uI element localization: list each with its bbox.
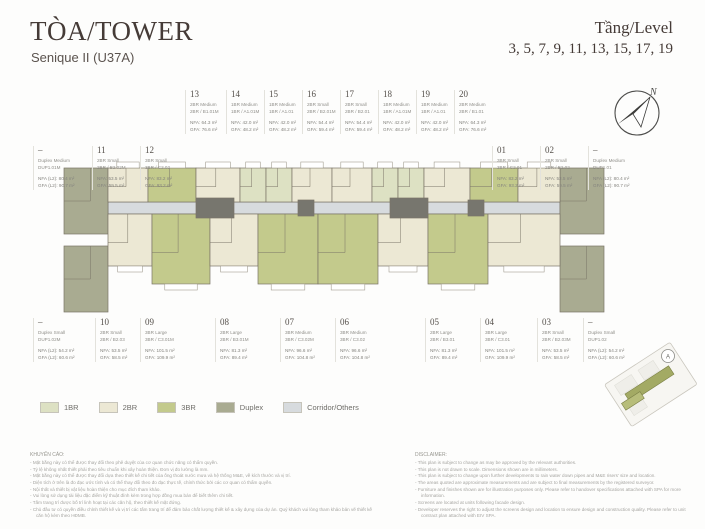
unit-nfa: NFA: 96.6 m²	[340, 348, 380, 355]
advisory-line: Vui lòng sử dụng tài liệu đặc điểm kỹ th…	[30, 493, 378, 500]
legend: 1BR 2BR 3BR Duplex Corridor/Others	[40, 402, 359, 413]
unit-gfa: GFA: 89.4 m²	[220, 355, 260, 362]
unit-nfa: NFA: 64.3 m²	[190, 120, 230, 127]
legend-label: Duplex	[240, 403, 263, 412]
unit-gfa: GFA (L2): 60.6 m²	[588, 355, 638, 362]
unit-gfa: GFA: 89.4 m²	[430, 355, 470, 362]
unit-label-09: 09 3BR Large 3BR / C3.01M NFA: 101.5 m² …	[140, 318, 185, 362]
unit-type: 3BR Large	[145, 330, 185, 337]
unit-label-12: 12 3BR Small 3BR / C2.02 NFA: 83.2 m² GF…	[140, 146, 185, 190]
disclaimer-line: This plan is not drawn to scale. Dimensi…	[415, 467, 687, 474]
unit-label-20: 20 2BR Medium 2BR / B1.01 NFA: 64.3 m² G…	[454, 90, 499, 134]
disclaimer-line: Screens are located at units following f…	[415, 500, 687, 507]
unit-number: 02	[545, 146, 585, 156]
unit-type: 2BR Large	[430, 330, 470, 337]
unit-gfa: GFA: 104.8 m²	[340, 355, 380, 362]
unit-type: 2BR Small	[542, 330, 582, 337]
legend-swatch-3br	[157, 402, 176, 413]
unit-number: 06	[340, 318, 380, 328]
unit-nfa: NFA: 53.5 m²	[545, 176, 585, 183]
unit-number: –	[38, 318, 88, 328]
legend-label: Corridor/Others	[307, 403, 359, 412]
advisory-line: Mặt bằng này có thể được thay đổi dựa th…	[30, 473, 378, 480]
advisory-line: Diện tích ở trên là đo đạc ước tính và c…	[30, 480, 378, 487]
unit-type: Duplex Small	[38, 330, 88, 337]
unit-type: 3BR Medium	[285, 330, 325, 337]
key-plan: A	[0, 0, 705, 529]
unit-number: 20	[459, 90, 499, 100]
advisory-line: Tấm trang trí được bố trí linh hoạt tại …	[30, 500, 378, 507]
legend-item-corridor: Corridor/Others	[283, 402, 359, 413]
unit-number: 04	[485, 318, 525, 328]
unit-gfa: GFA (L2): 90.7 m²	[38, 183, 88, 190]
unit-type: 3BR Small	[145, 158, 185, 165]
unit-code: 3BR / C3.02	[340, 337, 380, 344]
unit-nfa: NFA: 101.5 m²	[485, 348, 525, 355]
legend-swatch-duplex	[216, 402, 235, 413]
unit-nfa: NFA (L2): 54.2 m²	[588, 348, 638, 355]
unit-label-08: 08 2BR Large 2BR / B3.01M NFA: 81.3 m² G…	[215, 318, 260, 362]
unit-code: 2BR / B1.01M	[190, 109, 230, 116]
unit-label-13: 13 2BR Medium 2BR / B1.01M NFA: 64.3 m² …	[185, 90, 230, 134]
unit-gfa: GFA: 58.5 m²	[542, 355, 582, 362]
disclaimer-line: The areas quoted are approximate measure…	[415, 480, 687, 487]
disclaimer-block: DISCLAIMER: This plan is subject to chan…	[415, 452, 687, 520]
unit-nfa: NFA: 81.3 m²	[430, 348, 470, 355]
unit-code: 2BR / B2.03M	[542, 337, 582, 344]
unit-gfa: GFA: 93.2 m²	[497, 183, 537, 190]
unit-type: 2BR Medium	[190, 102, 230, 109]
unit-gfa: GFA: 109.9 m²	[485, 355, 525, 362]
unit-type: Duplex Medium	[38, 158, 88, 165]
unit-number: 11	[97, 146, 137, 156]
legend-label: 1BR	[64, 403, 79, 412]
unit-code: DUP1.01	[593, 165, 643, 172]
unit-number: 05	[430, 318, 470, 328]
unit-label-duplex-small-right: – Duplex Small DUP1.02 NFA (L2): 54.2 m²…	[583, 318, 638, 362]
unit-code: 2BR / B2.02M	[97, 165, 137, 172]
unit-type: Duplex Medium	[593, 158, 643, 165]
unit-label-07: 07 3BR Medium 3BR / C3.02M NFA: 96.6 m² …	[280, 318, 325, 362]
unit-type: 2BR Medium	[459, 102, 499, 109]
unit-code: 3BR / C3.02M	[285, 337, 325, 344]
unit-label-duplex-medium-left: – Duplex Medium DUP1.01M NFA (L2): 80.4 …	[33, 146, 88, 190]
unit-gfa: GFA: 59.5 m²	[97, 183, 137, 190]
unit-code: 3BR / C3.01M	[145, 337, 185, 344]
advisory-title: KHUYẾN CÁO:	[30, 452, 378, 458]
disclaimer-line: Developer reserves the right to adjust t…	[415, 507, 687, 520]
unit-number: 09	[145, 318, 185, 328]
unit-code: 2BR / B2.02	[545, 165, 585, 172]
unit-code: DUP1.02	[588, 337, 638, 344]
legend-item-3br: 3BR	[157, 402, 196, 413]
unit-type: Duplex Small	[588, 330, 638, 337]
unit-label-10: 10 2BR Small 2BR / B2.03 NFA: 53.5 m² GF…	[95, 318, 140, 362]
legend-label: 3BR	[181, 403, 196, 412]
unit-gfa: GFA: 76.6 m²	[459, 127, 499, 134]
unit-number: –	[38, 146, 88, 156]
legend-item-1br: 1BR	[40, 402, 79, 413]
advisory-line: Mặt bằng này có thể được thay đổi theo p…	[30, 460, 378, 467]
unit-label-05: 05 2BR Large 2BR / B3.01 NFA: 81.3 m² GF…	[425, 318, 470, 362]
unit-type: 3BR Small	[497, 158, 537, 165]
unit-type: 2BR Small	[100, 330, 140, 337]
disclaimer-line: Furniture and finishes shown are for ill…	[415, 487, 687, 500]
unit-type: 3BR Large	[485, 330, 525, 337]
unit-code: DUP1.01M	[38, 165, 88, 172]
floor-plan-page: TÒA/TOWER Senique II (U37A) Tầng/Level 3…	[0, 0, 705, 529]
unit-code: DUP1.02M	[38, 337, 88, 344]
unit-code: 2BR / B3.01	[430, 337, 470, 344]
disclaimer-line: This plan is subject to change as may be…	[415, 460, 687, 467]
legend-swatch-1br	[40, 402, 59, 413]
unit-nfa: NFA: 83.2 m²	[145, 176, 185, 183]
disclaimer-title: DISCLAIMER:	[415, 452, 687, 458]
unit-nfa: NFA: 96.6 m²	[285, 348, 325, 355]
unit-number: –	[588, 318, 638, 328]
unit-label-03: 03 2BR Small 2BR / B2.03M NFA: 53.5 m² G…	[537, 318, 582, 362]
unit-gfa: GFA: 58.5 m²	[100, 355, 140, 362]
unit-number: 12	[145, 146, 185, 156]
unit-type: 3BR Medium	[340, 330, 380, 337]
unit-gfa: GFA: 93.2 m²	[145, 183, 185, 190]
unit-nfa: NFA: 81.3 m²	[220, 348, 260, 355]
unit-type: 2BR Small	[545, 158, 585, 165]
unit-nfa: NFA (L2): 80.4 m²	[593, 176, 643, 183]
legend-item-duplex: Duplex	[216, 402, 263, 413]
unit-number: 13	[190, 90, 230, 100]
unit-nfa: NFA: 101.5 m²	[145, 348, 185, 355]
unit-nfa: NFA: 64.3 m²	[459, 120, 499, 127]
unit-label-01: 01 3BR Small 3BR / C2.01 NFA: 83.2 m² GF…	[492, 146, 537, 190]
unit-type: 2BR Small	[97, 158, 137, 165]
unit-label-06: 06 3BR Medium 3BR / C3.02 NFA: 96.6 m² G…	[335, 318, 380, 362]
unit-number: 07	[285, 318, 325, 328]
unit-code: 3BR / C2.02	[145, 165, 185, 172]
unit-gfa: GFA: 76.6 m²	[190, 127, 230, 134]
unit-nfa: NFA: 83.2 m²	[497, 176, 537, 183]
advisory-line: Chủ đầu tư có quyền điều chỉnh thiết kế …	[30, 507, 378, 520]
unit-label-02: 02 2BR Small 2BR / B2.02 NFA: 53.5 m² GF…	[540, 146, 585, 190]
key-plan-marker: A	[666, 355, 670, 361]
unit-label-duplex-small-left: – Duplex Small DUP1.02M NFA (L2): 54.2 m…	[33, 318, 88, 362]
unit-nfa: NFA: 53.5 m²	[542, 348, 582, 355]
unit-label-duplex-medium-right: – Duplex Medium DUP1.01 NFA (L2): 80.4 m…	[588, 146, 643, 190]
disclaimer-line: This plan is subject to change upon furt…	[415, 473, 687, 480]
unit-code: 3BR / C2.01	[497, 165, 537, 172]
unit-code: 3BR / C3.01	[485, 337, 525, 344]
unit-nfa: NFA (L2): 54.2 m²	[38, 348, 88, 355]
unit-gfa: GFA: 59.5 m²	[545, 183, 585, 190]
legend-item-2br: 2BR	[99, 402, 138, 413]
unit-nfa: NFA: 53.5 m²	[97, 176, 137, 183]
unit-nfa: NFA: 53.5 m²	[100, 348, 140, 355]
unit-number: 03	[542, 318, 582, 328]
advisory-block: KHUYẾN CÁO: Mặt bằng này có thể được tha…	[30, 452, 378, 520]
unit-label-11: 11 2BR Small 2BR / B2.02M NFA: 53.5 m² G…	[92, 146, 137, 190]
unit-gfa: GFA (L2): 60.6 m²	[38, 355, 88, 362]
unit-code: 2BR / B2.03	[100, 337, 140, 344]
unit-gfa: GFA: 104.8 m²	[285, 355, 325, 362]
legend-label: 2BR	[123, 403, 138, 412]
legend-swatch-2br	[99, 402, 118, 413]
legend-swatch-corridor	[283, 402, 302, 413]
unit-number: 01	[497, 146, 537, 156]
unit-gfa: GFA: 109.9 m²	[145, 355, 185, 362]
unit-code: 2BR / B3.01M	[220, 337, 260, 344]
unit-code: 2BR / B1.01	[459, 109, 499, 116]
unit-number: 08	[220, 318, 260, 328]
unit-nfa: NFA (L2): 80.4 m²	[38, 176, 88, 183]
unit-number: 10	[100, 318, 140, 328]
unit-type: 2BR Large	[220, 330, 260, 337]
unit-gfa: GFA (L2): 90.7 m²	[593, 183, 643, 190]
unit-number: –	[593, 146, 643, 156]
unit-label-04: 04 3BR Large 3BR / C3.01 NFA: 101.5 m² G…	[480, 318, 525, 362]
